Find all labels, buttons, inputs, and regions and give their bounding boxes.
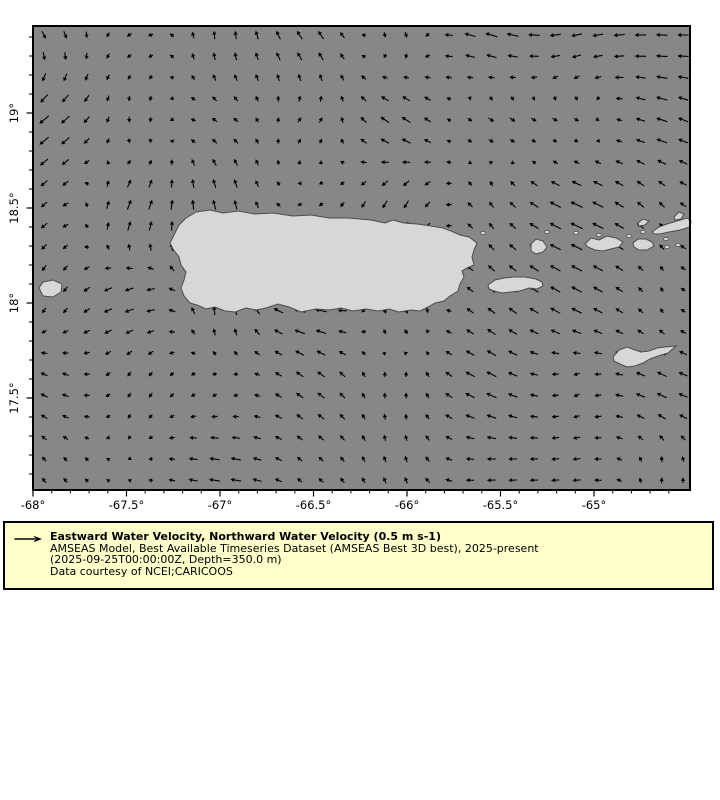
water-velocity-quiver-map: -68°-67.5°-67°-66.5°-66°-65.5°-65° 19°18…: [0, 0, 720, 518]
islet: [664, 237, 669, 240]
y-tick-label: 18.5°: [7, 192, 21, 223]
islet: [481, 231, 486, 234]
legend-title: Eastward Water Velocity, Northward Water…: [50, 531, 539, 543]
x-tick-label: -65°: [582, 498, 607, 512]
legend-time-depth-line: (2025-09-25T00:00:00Z, Depth=350.0 m): [50, 554, 539, 566]
x-tick-label: -67°: [208, 498, 233, 512]
x-tick-label: -66°: [395, 498, 420, 512]
reference-arrow-icon: [14, 533, 42, 545]
legend-courtesy-line: Data courtesy of NCEI;CARICOOS: [50, 566, 539, 578]
islet: [545, 230, 550, 233]
legend-box: Eastward Water Velocity, Northward Water…: [3, 521, 714, 590]
islet: [641, 230, 646, 233]
x-tick-label: -67.5°: [109, 498, 145, 512]
islet: [597, 233, 602, 236]
figure: -68°-67.5°-67°-66.5°-66°-65.5°-65° 19°18…: [0, 0, 720, 800]
y-tick-label: 19°: [7, 103, 21, 123]
x-tick-label: -68°: [21, 498, 46, 512]
islet: [627, 234, 632, 237]
y-tick-label: 18°: [7, 293, 21, 313]
islet: [676, 243, 681, 246]
y-tick-label: 17.5°: [7, 382, 21, 413]
x-tick-label: -65.5°: [483, 498, 519, 512]
longitude-axis: -68°-67.5°-67°-66.5°-66°-65.5°-65°: [21, 490, 669, 512]
x-tick-label: -66.5°: [296, 498, 332, 512]
latitude-axis: 19°18.5°18°17.5°: [7, 37, 33, 474]
islet: [574, 231, 579, 234]
islet: [665, 245, 670, 248]
